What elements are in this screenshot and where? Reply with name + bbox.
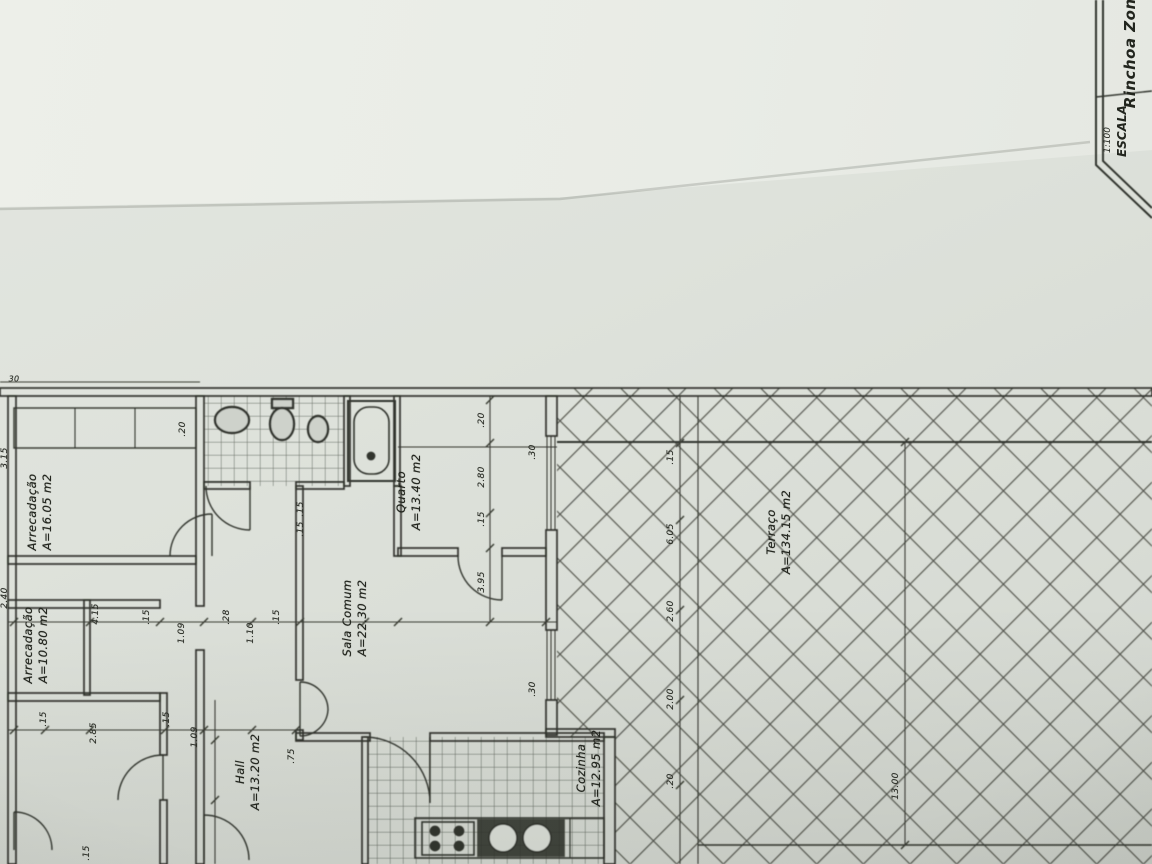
dimension-label: .30: [528, 681, 538, 696]
dimension-label: .20: [178, 421, 188, 436]
dimension-label: 1.09: [177, 622, 187, 643]
dimension-label: .15: [162, 711, 172, 726]
room-label-quarto: Quarto A=13.40 m2: [394, 454, 424, 531]
dimension-label: 3.15: [0, 447, 10, 468]
room-label-arrecadacao-2: Arrecadação A=10.80 m2: [21, 607, 51, 684]
scanned-floor-plan-photo: Arrecadação A=16.05 m2 Arrecadação A=10.…: [0, 0, 1152, 864]
dimension-label: .28: [222, 609, 232, 624]
title-block-project: Rinchoa Zona: [1121, 0, 1139, 108]
dimension-label: .15: [296, 501, 306, 516]
room-label-sala-comum: Sala Comum A=22.30 m2: [340, 579, 370, 656]
dimension-label: 3.95: [477, 571, 487, 592]
dimension-label: .15: [39, 711, 49, 726]
room-label-terraco: Terraço A=134.15 m2: [764, 490, 794, 574]
dimension-label: 13.00: [891, 772, 901, 799]
dimension-label: 4.15: [91, 603, 101, 624]
dimension-label: 1.09: [190, 726, 200, 747]
dimension-label: .15: [272, 609, 282, 624]
dimension-label: .15: [477, 511, 487, 526]
room-label-cozinha: Cozinha A=12.95 m2: [574, 730, 604, 807]
dimension-label: .30: [528, 444, 538, 459]
dimension-label: 1.10: [246, 622, 256, 643]
dimension-label: .15: [142, 609, 152, 624]
dimension-label: 2.40: [0, 587, 10, 608]
dimension-label: .20: [477, 412, 487, 427]
title-block-scale-label: ESCALA: [1115, 105, 1129, 157]
title-block-scale-value: 1:100: [1103, 127, 1113, 153]
dimension-label: .15: [82, 845, 92, 860]
room-label-arrecadacao-1: Arrecadação A=16.05 m2: [25, 474, 55, 551]
room-label-hall: Hall A=13.20 m2: [233, 734, 263, 811]
dimension-label: 2.00: [666, 688, 676, 709]
dimension-label: 6.05: [666, 523, 676, 544]
dimension-label: 2.80: [477, 466, 487, 487]
dimension-label: .15: [296, 521, 306, 536]
dimension-label: 30: [9, 375, 20, 384]
dimension-label: .20: [666, 773, 676, 788]
dimension-label: 2.60: [666, 600, 676, 621]
dimension-label: .75: [287, 748, 297, 763]
text-labels: Arrecadação A=16.05 m2 Arrecadação A=10.…: [0, 0, 1152, 864]
dimension-label: .15: [666, 449, 676, 464]
dimension-label: 2.85: [89, 722, 99, 743]
